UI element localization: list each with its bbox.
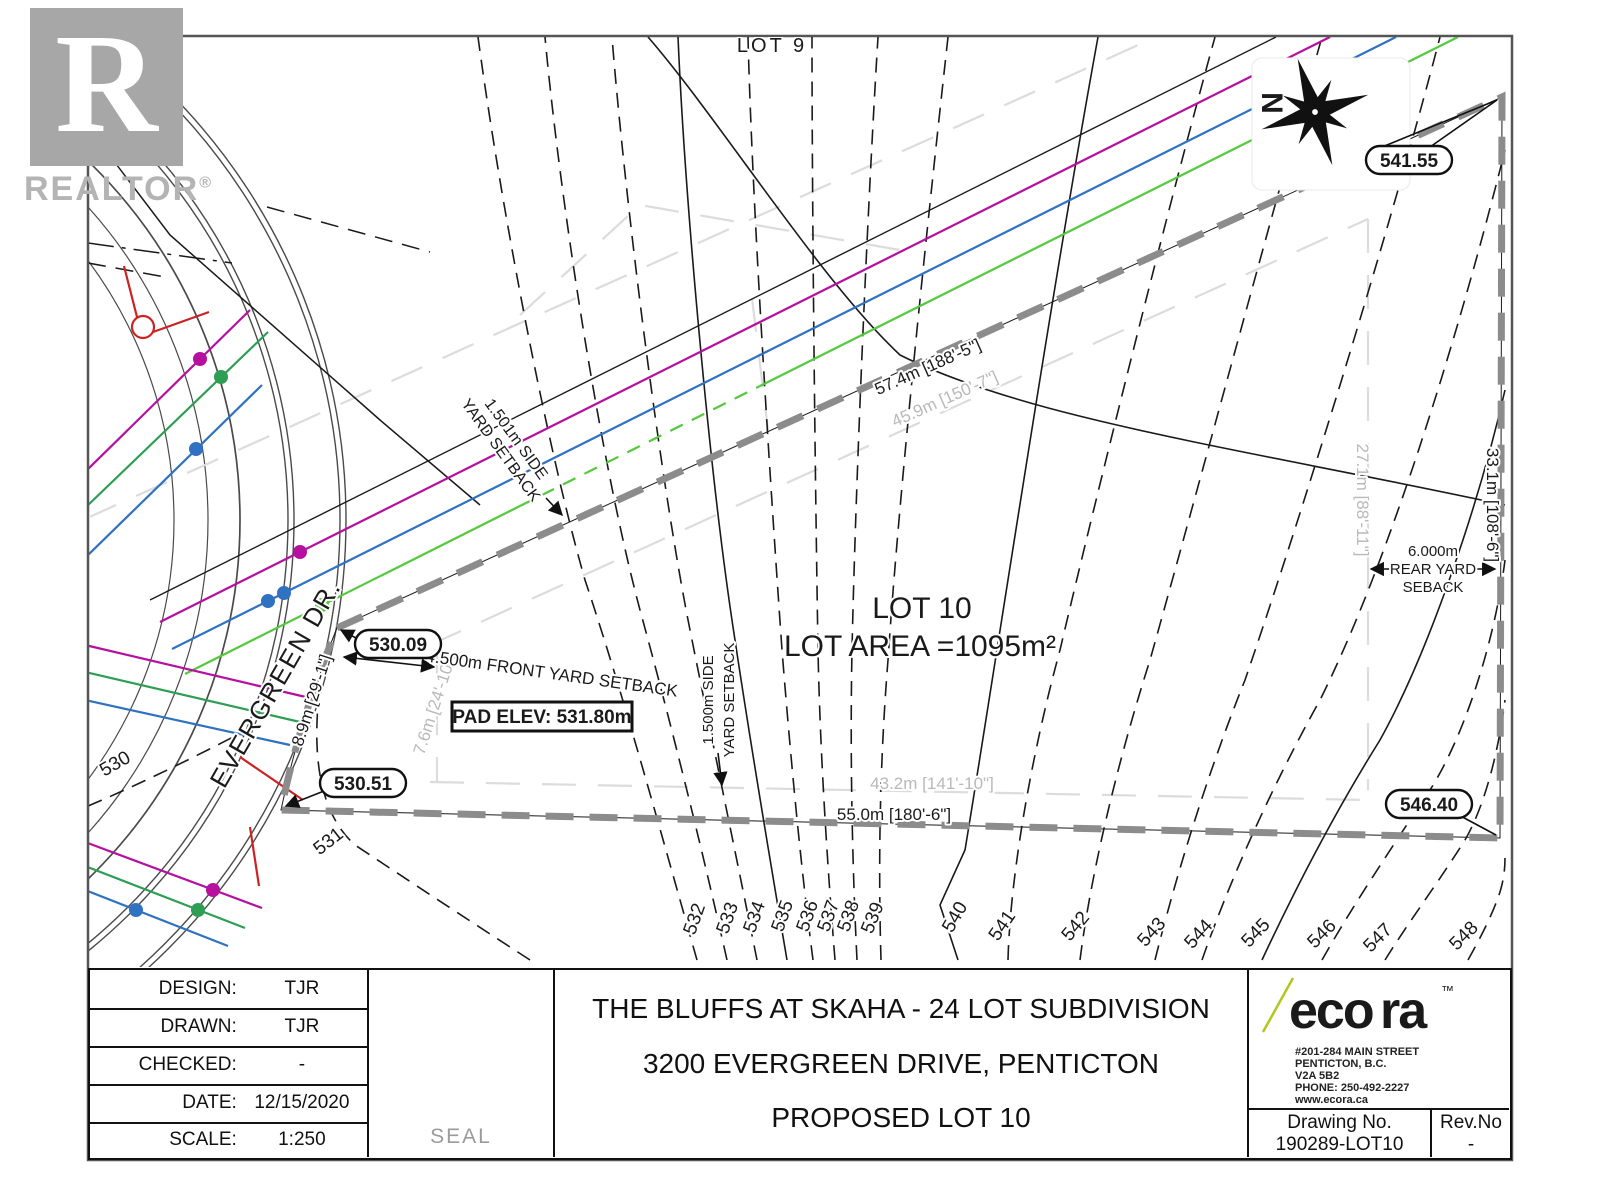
titleblock-row: DESIGN: TJR [90, 970, 367, 1010]
side-setback-bottom-label-1: 1.500m SIDE [700, 655, 717, 744]
drawing-number-value: 190289-LOT10 [1276, 1134, 1404, 1156]
dim-bottom: 55.0m [180'-6"] [837, 805, 951, 824]
side-setback-bottom-label-2: YARD SETBACK [721, 643, 738, 758]
realtor-logo-icon: R [30, 8, 183, 166]
rear-setback-label-2: REAR YARD [1390, 561, 1476, 578]
svg-text:eco: eco [1289, 982, 1373, 1040]
realtor-brand-text: REALTOR [24, 170, 199, 208]
drawing-title-line2: 3200 EVERGREEN DRIVE, PENTICTON [643, 1048, 1159, 1080]
road-arcs [0, 0, 346, 1126]
drawing-title-line3: PROPOSED LOT 10 [771, 1102, 1030, 1134]
dim-right-gray: 27.1m [88'-11"] [1353, 444, 1372, 557]
titleblock-row: DRAWN: TJR [90, 1008, 367, 1048]
lot10-label: LOT 10 [872, 592, 972, 625]
svg-text:530.09: 530.09 [369, 635, 427, 656]
registered-mark: ® [199, 175, 213, 192]
drawing-number-label: Drawing No. [1287, 1112, 1392, 1134]
contour-label: 540 [938, 898, 972, 936]
front-setback-label: 4.500m FRONT YARD SETBACK [425, 646, 680, 700]
contour-label: 546 [1303, 915, 1340, 952]
seal-cell: SEAL [369, 970, 553, 1157]
ecora-logo-block: eco ra ™ #201-284 MAIN STREET PENTICTON,… [1249, 970, 1509, 1110]
contour-label: 548 [1445, 917, 1482, 954]
ecora-address: #201-284 MAIN STREET PENTICTON, B.C. V2A… [1295, 1046, 1419, 1106]
rear-setback-label-1: 6.000m [1408, 543, 1458, 560]
title-block: DESIGN: TJR DRAWN: TJR CHECKED: - DATE: … [88, 968, 1512, 1160]
drawing-title-line1: THE BLUFFS AT SKAHA - 24 LOT SUBDIVISION [592, 993, 1210, 1025]
spot-elevation-w: 530.09 [355, 630, 441, 658]
spot-elevation-ne: 541.55 [1366, 146, 1452, 174]
contour-label: 535 [768, 898, 799, 935]
svg-text:PAD ELEV: 531.80m: PAD ELEV: 531.80m [452, 707, 631, 728]
svg-text:™: ™ [1441, 983, 1454, 998]
lot9-label: LOT 9 [737, 35, 807, 57]
contour-label: 534 [740, 898, 771, 935]
revision-value: - [1468, 1134, 1474, 1156]
svg-text:546.40: 546.40 [1400, 795, 1458, 816]
spot-elevation-se: 546.40 [1386, 790, 1472, 818]
drawing-title: THE BLUFFS AT SKAHA - 24 LOT SUBDIVISION… [555, 970, 1247, 1157]
svg-text:541.55: 541.55 [1380, 151, 1439, 172]
lot-area-label: LOT AREA =1095m² [784, 630, 1056, 663]
rear-setback-label-3: SEBACK [1403, 579, 1464, 596]
svg-text:ra: ra [1380, 982, 1428, 1040]
contour-label: 530 [96, 747, 134, 781]
pad-elev-box: PAD ELEV: 531.80m [452, 702, 632, 731]
contour-label: 544 [1181, 915, 1218, 953]
titleblock-row: CHECKED: - [90, 1046, 367, 1086]
contour-label: 543 [1134, 914, 1171, 952]
svg-text:530.51: 530.51 [334, 774, 393, 795]
contour-label: 531 [310, 824, 348, 860]
contour-label: 542 [1058, 908, 1094, 946]
north-label: N [1255, 92, 1288, 114]
titleblock-row: DATE: 12/15/2020 [90, 1084, 367, 1124]
contour-label: 533 [713, 900, 744, 937]
titleblock-row: SCALE: 1:250 [90, 1122, 367, 1157]
revision-cell: Rev.No - [1433, 1110, 1509, 1157]
contour-label: 532 [680, 901, 711, 938]
spot-elevation-sw: 530.51 [320, 769, 406, 797]
contour-label: 541 [985, 907, 1020, 945]
drawing-number-cell: Drawing No. 190289-LOT10 [1249, 1110, 1432, 1157]
dim-right: 33.1m [108'-6"] [1483, 448, 1502, 562]
revision-label: Rev.No [1440, 1112, 1502, 1134]
dim-bottom-gray: 43.2m [141'-10"] [870, 774, 994, 793]
